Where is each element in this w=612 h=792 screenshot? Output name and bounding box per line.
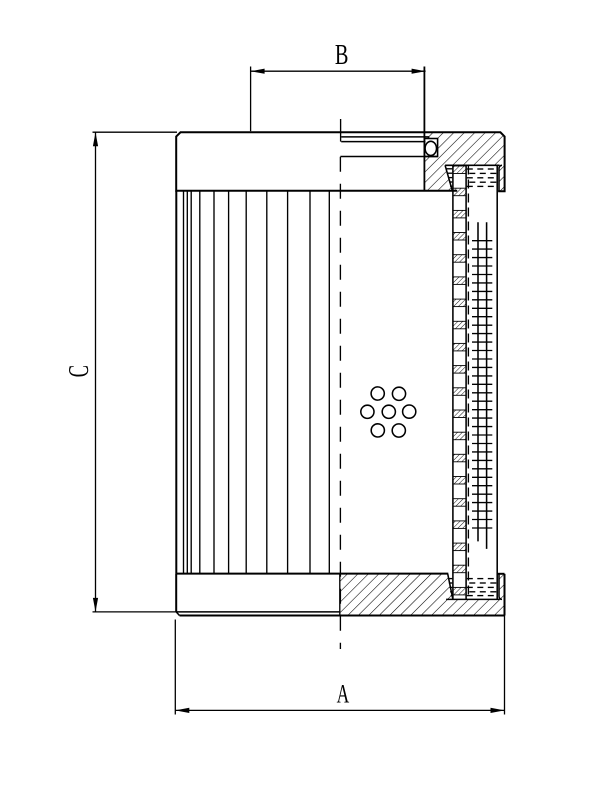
- svg-text:A: A: [337, 679, 350, 709]
- svg-text:C: C: [63, 365, 95, 377]
- svg-text:B: B: [335, 40, 349, 71]
